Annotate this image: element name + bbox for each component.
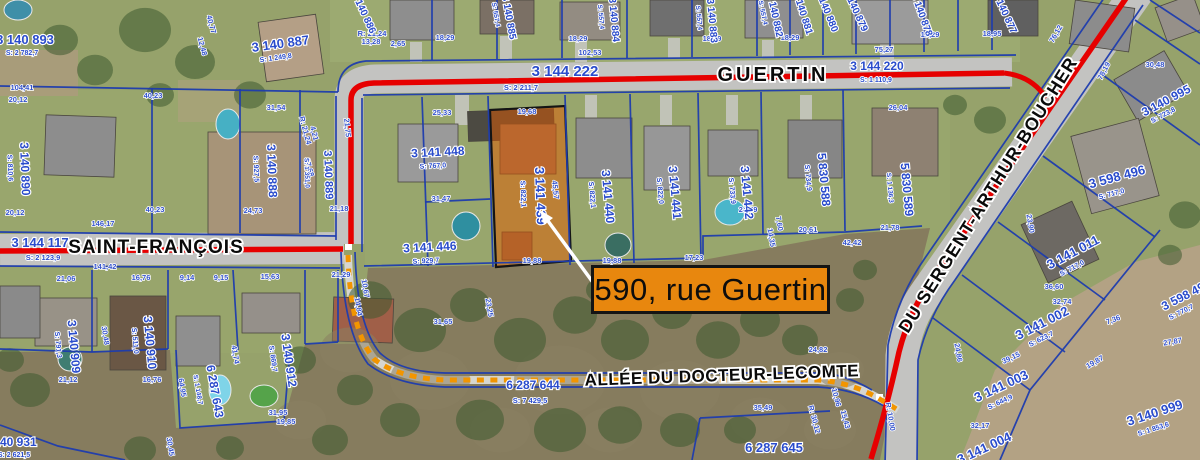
- tree: [660, 413, 700, 447]
- measurement-label: 21,18: [330, 204, 349, 213]
- measurement-label: 19,85: [277, 417, 296, 426]
- pool: [216, 109, 240, 139]
- tree: [450, 288, 490, 322]
- measurement-label: 32,17: [971, 421, 990, 430]
- parcel-area: S: 927,5: [252, 156, 260, 183]
- pool: [605, 233, 631, 257]
- measurement-label: 75,27: [875, 45, 894, 54]
- driveway: [800, 95, 812, 123]
- driveway: [410, 42, 422, 62]
- measurement-label: 26,04: [889, 103, 909, 112]
- tree: [853, 260, 877, 280]
- tree: [312, 425, 348, 456]
- measurement-label: 21,29: [332, 270, 351, 279]
- measurement-label: 18,95: [983, 29, 1002, 38]
- parcel-number: 3 141 448: [411, 144, 465, 161]
- measurement-label: 18,29: [436, 33, 455, 42]
- parcel-area: S: 1 110,9: [860, 77, 892, 84]
- measurement-label: 42,42: [843, 238, 862, 247]
- pool: [250, 385, 278, 407]
- measurement-label: 141,42: [94, 262, 117, 271]
- measurement-label: 21,78: [881, 223, 900, 232]
- measurement-label: 19,68: [518, 107, 537, 116]
- measurement-label: 31,65: [434, 317, 453, 326]
- tree: [234, 81, 266, 108]
- parcel-number: 3 140 893: [0, 32, 54, 47]
- tree: [598, 406, 642, 443]
- centerline-gap: [345, 244, 352, 250]
- measurement-label: 31,54: [267, 103, 287, 112]
- measurement-label: 40,23: [144, 91, 163, 100]
- driveway: [455, 95, 469, 125]
- parcel-number: 3 144 222: [532, 63, 599, 80]
- measurement-label: 104,41: [11, 83, 34, 92]
- measurement-label: 13,28: [362, 37, 381, 46]
- tree: [119, 8, 171, 52]
- measurement-label: 24,82: [809, 345, 828, 354]
- measurement-label: 31,47: [432, 194, 451, 203]
- measurement-label: 19,88: [603, 256, 622, 265]
- pool: [4, 0, 32, 20]
- tree: [836, 288, 864, 312]
- address-callout-text: 590, rue Guertin: [594, 272, 826, 308]
- parcel-number: 3 140 890: [17, 142, 33, 196]
- parcel-area: S: 929,7: [413, 257, 440, 265]
- driveway: [668, 38, 680, 58]
- street-name: SAINT-FRANÇOIS: [68, 237, 244, 258]
- parcel-number: 3 140 888: [264, 144, 280, 198]
- map-canvas[interactable]: 104,4120,1240,2340,7712,4831,54R: 21,244…: [0, 0, 1200, 460]
- measurement-label: 2,65: [391, 39, 406, 48]
- tree: [380, 403, 420, 437]
- measurement-label: 9,15: [214, 273, 229, 282]
- parcel-area: S: 1 351,0: [302, 158, 310, 189]
- driveway: [660, 95, 672, 125]
- measurement-label: 9,14: [180, 273, 195, 282]
- measurement-label: 18,29: [569, 34, 588, 43]
- house-roof: [788, 120, 842, 178]
- pool: [452, 212, 480, 240]
- tree: [1169, 201, 1200, 228]
- measurement-label: 30,48: [1146, 60, 1165, 69]
- measurement-label: 102,53: [579, 48, 602, 57]
- parcel-area: S: 767,0: [420, 162, 447, 170]
- measurement-label: 19,88: [523, 256, 542, 265]
- house-roof: [176, 316, 220, 366]
- measurement-label: 20,61: [799, 225, 818, 234]
- house-roof: [1069, 0, 1135, 52]
- parcel-area: S: 2 621,5: [0, 452, 30, 459]
- tree: [601, 320, 649, 361]
- tree: [696, 321, 740, 358]
- parcel-number: 3 141 446: [403, 239, 457, 256]
- measurement-label: 16,76: [143, 375, 162, 384]
- tree: [456, 400, 504, 441]
- street-name: GUERTIN: [718, 64, 829, 86]
- tree: [337, 375, 373, 406]
- house-roof: [242, 293, 300, 333]
- measurement-label: 21,75: [342, 118, 353, 137]
- parcel-area: S: 2 123,9: [26, 253, 61, 262]
- driveway: [762, 40, 774, 58]
- measurement-label: 20,12: [9, 95, 28, 104]
- aerial-map: 104,4120,1240,2340,7712,4831,54R: 21,244…: [0, 0, 1200, 460]
- measurement-label: 31,95: [269, 408, 288, 417]
- tree: [216, 436, 244, 460]
- parcel-number: 6 287 644: [506, 378, 560, 392]
- tree: [77, 55, 113, 86]
- tree: [494, 318, 546, 362]
- measurement-label: 146,17: [92, 219, 115, 228]
- parcel-number: 6 287 645: [745, 440, 803, 455]
- tree: [943, 95, 967, 115]
- house-roof: [44, 115, 116, 177]
- house-roof: [0, 286, 40, 338]
- parcel-number: 3 140 889: [321, 150, 335, 199]
- parcel-number: 3 144 117: [11, 235, 68, 250]
- measurement-label: 35,49: [754, 403, 773, 412]
- tree: [10, 373, 50, 407]
- measurement-label: 25,33: [433, 108, 452, 117]
- parcel-area: S: 2 211,7: [504, 83, 538, 92]
- parcel-area: S: 2 782,7: [6, 50, 38, 57]
- measurement-label: 21,12: [59, 375, 78, 384]
- highlight-parcel-area: S: 822,1: [519, 181, 527, 208]
- measurement-label: 45,57: [550, 180, 561, 199]
- parcel-number: 3 140 931: [0, 435, 37, 449]
- driveway: [726, 95, 738, 125]
- measurement-label: 40,23: [146, 205, 165, 214]
- house-roof: [576, 118, 632, 178]
- tree: [1158, 245, 1182, 265]
- measurement-label: 17,23: [685, 253, 704, 262]
- address-callout[interactable]: 590, rue Guertin: [591, 265, 830, 314]
- measurement-label: 15,63: [261, 272, 280, 281]
- parcel-number: 3 144 220: [850, 59, 904, 73]
- tree: [534, 408, 586, 452]
- parcel-area: S: 810,6: [6, 155, 14, 182]
- tree: [974, 106, 1006, 133]
- tree: [394, 308, 446, 352]
- measurement-label: 21,06: [57, 274, 76, 283]
- measurement-label: 24,73: [244, 206, 263, 215]
- measurement-label: 20,12: [6, 208, 25, 217]
- measurement-label: 16,76: [132, 273, 151, 282]
- parcel-area: S: 7 429,5: [513, 396, 548, 405]
- measurement-label: 36,60: [1045, 282, 1064, 291]
